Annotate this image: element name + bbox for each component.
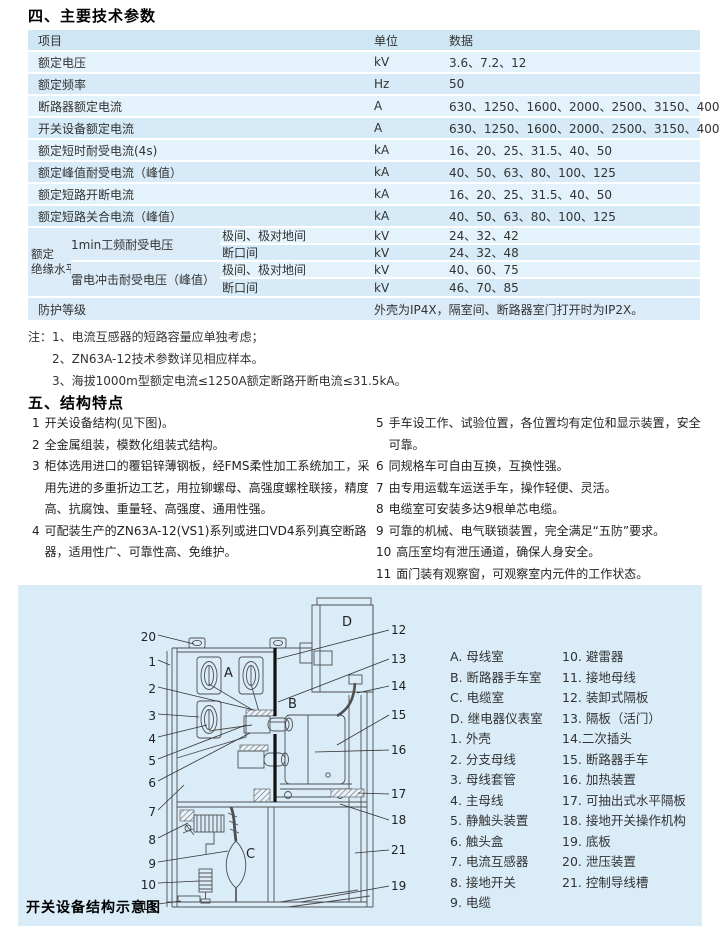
row-item: 额定峰值耐受电流（峰值） <box>28 164 372 181</box>
legend-item: 8. 接地开关 <box>450 873 543 894</box>
insulation-level-block: 额定 绝缘水平 1min工频耐受电压 雷电冲击耐受电压（峰值） 极间、极对地间 … <box>28 228 700 298</box>
callout-16: 16 <box>391 743 406 757</box>
insulation-value: 24、32、48 <box>447 245 700 262</box>
insulation-unit: kV <box>372 262 447 279</box>
note-item: 3、海拔1000m型额定电流≤1250A额定断路开断电流≤31.5kA。 <box>52 370 407 392</box>
params-table-header: 项目 单位 数据 <box>28 30 700 52</box>
row-data: 16、20、25、31.5、40、50 <box>447 142 700 159</box>
features-right-column: 5手车设工作、试验位置，各位置均有定位和显示装置，安全可靠。6同规格车可自由互换… <box>376 413 710 585</box>
params-section-title: 四、主要技术参数 <box>28 5 156 26</box>
note-line: 2、ZN63A-12技术参数详见相应样本。 <box>28 348 407 370</box>
insulation-cond: 断口间 <box>220 245 372 262</box>
callout-15: 15 <box>391 708 406 722</box>
feature-item: 5手车设工作、试验位置，各位置均有定位和显示装置，安全可靠。 <box>376 413 710 456</box>
feature-item: 7由专用运载车运送手车，操作轻便、灵活。 <box>376 478 710 500</box>
note-line: 3、海拔1000m型额定电流≤1250A额定断路开断电流≤31.5kA。 <box>28 370 407 392</box>
table-row: 额定短时耐受电流(4s) kA 16、20、25、31.5、40、50 <box>28 140 700 162</box>
feature-item: 1开关设备结构(见下图)。 <box>32 413 374 435</box>
note-item: 1、电流互感器的短路容量应单独考虑； <box>52 326 407 348</box>
features-left-column: 1开关设备结构(见下图)。2全金属组装，模数化组装式结构。3柜体选用进口的覆铝锌… <box>32 413 374 564</box>
row-item: 额定短路开断电流 <box>28 186 372 203</box>
row-unit: kA <box>372 209 447 223</box>
row-unit: A <box>372 121 447 135</box>
params-table: 项目 单位 数据 额定电压 kV 3.6、7.2、12 额定频率 Hz 50 断… <box>28 30 700 320</box>
insulation-value: 24、32、42 <box>447 228 700 245</box>
legend-item: 5. 静触头装置 <box>450 811 543 832</box>
legend-item: 21. 控制导线槽 <box>562 873 686 894</box>
row-data: 40、50、63、80、100、125 <box>447 208 700 225</box>
protection-row: 防护等级 外壳为IP4X，隔室间、断路器室门打开时为IP2X。 <box>28 298 700 320</box>
legend-item: 3. 母线套管 <box>450 770 543 791</box>
row-item: 额定短时耐受电流(4s) <box>28 142 372 159</box>
table-row: 额定电压 kV 3.6、7.2、12 <box>28 52 700 74</box>
row-data: 3.6、7.2、12 <box>447 54 700 71</box>
legend-item: 20. 泄压装置 <box>562 852 686 873</box>
legend-column-2: 10. 避雷器11. 接地母线12. 装卸式隔板13. 隔板（活门）14.二次插… <box>562 647 686 893</box>
legend-item: 18. 接地开关操作机构 <box>562 811 686 832</box>
callout-20: 20 <box>132 630 156 644</box>
features-section-title: 五、结构特点 <box>28 392 124 413</box>
table-row: 额定短路开断电流 kA 16、20、25、31.5、40、50 <box>28 184 700 206</box>
compartment-b-label: B <box>288 697 297 712</box>
insulation-unit: kV <box>372 279 447 296</box>
callout-5: 5 <box>132 754 156 768</box>
diagram-caption: 开关设备结构示意图 <box>26 897 161 917</box>
callout-9: 9 <box>132 857 156 871</box>
row-item: 额定电压 <box>28 54 372 71</box>
row-data: 630、1250、1600、2000、2500、3150、4000 <box>447 98 700 115</box>
legend-item: 1. 外壳 <box>450 729 543 750</box>
callout-8: 8 <box>132 833 156 847</box>
legend-item: 19. 底板 <box>562 832 686 853</box>
insulation-unit: kV <box>372 228 447 245</box>
callout-1: 1 <box>132 655 156 669</box>
callout-2: 2 <box>132 682 156 696</box>
table-row: 开关设备额定电流 A 630、1250、1600、2000、2500、3150、… <box>28 118 700 140</box>
insulation-cond: 极间、极对地间 <box>220 228 372 245</box>
insulation-cond: 断口间 <box>220 279 372 296</box>
protection-value: 外壳为IP4X，隔室间、断路器室门打开时为IP2X。 <box>372 301 700 318</box>
compartment-c-label: C <box>246 847 255 862</box>
insulation-value: 40、60、75 <box>447 262 700 279</box>
insulation-group-line1: 额定 <box>31 247 54 262</box>
legend-item: 9. 电缆 <box>450 893 543 914</box>
protection-label: 防护等级 <box>28 301 372 318</box>
legend-item: 13. 隔板（活门） <box>562 709 686 730</box>
row-data: 630、1250、1600、2000、2500、3150、4000 <box>447 120 700 137</box>
lightning-impulse-label: 雷电冲击耐受电压（峰值） <box>71 262 220 296</box>
feature-item: 4可配装生产的ZN63A-12(VS1)系列或进口VD4系列真空断路器，适用性广… <box>32 521 374 564</box>
insulation-value: 46、70、85 <box>447 279 700 296</box>
callout-4: 4 <box>132 732 156 746</box>
feature-item: 10高压室均有泄压通道，确保人身安全。 <box>376 542 710 564</box>
callout-19: 19 <box>391 879 406 893</box>
legend-item: 11. 接地母线 <box>562 668 686 689</box>
row-unit: kV <box>372 55 447 69</box>
table-row: 断路器额定电流 A 630、1250、1600、2000、2500、3150、4… <box>28 96 700 118</box>
params-rows: 额定电压 kV 3.6、7.2、12 额定频率 Hz 50 断路器额定电流 A … <box>28 52 700 228</box>
legend-item: A. 母线室 <box>450 647 543 668</box>
legend-item: B. 断路器手车室 <box>450 668 543 689</box>
callout-12: 12 <box>391 623 406 637</box>
feature-item: 3柜体选用进口的覆铝锌薄钢板，经FMS柔性加工系统加工，采用先进的多重折边工艺，… <box>32 456 374 521</box>
callout-10: 10 <box>132 878 156 892</box>
callout-3: 3 <box>132 709 156 723</box>
compartment-d-label: D <box>342 615 352 630</box>
callout-17: 17 <box>391 787 406 801</box>
table-row: 额定峰值耐受电流（峰值） kA 40、50、63、80、100、125 <box>28 162 700 184</box>
header-item: 项目 <box>28 32 372 49</box>
legend-item: 12. 装卸式隔板 <box>562 688 686 709</box>
callout-7: 7 <box>132 805 156 819</box>
callout-18: 18 <box>391 813 406 827</box>
insulation-unit: kV <box>372 245 447 262</box>
row-item: 断路器额定电流 <box>28 98 372 115</box>
row-unit: A <box>372 99 447 113</box>
power-frequency-label: 1min工频耐受电压 <box>71 228 220 262</box>
callout-21: 21 <box>391 843 406 857</box>
note-line: 注： 1、电流互感器的短路容量应单独考虑； <box>28 326 407 348</box>
legend-item: 17. 可抽出式水平隔板 <box>562 791 686 812</box>
legend-item: 10. 避雷器 <box>562 647 686 668</box>
legend-item: 6. 触头盒 <box>450 832 543 853</box>
callout-6: 6 <box>132 776 156 790</box>
legend-column-1: A. 母线室B. 断路器手车室C. 电缆室D. 继电器仪表室1. 外壳2. 分支… <box>450 647 543 914</box>
legend-item: 4. 主母线 <box>450 791 543 812</box>
legend-item: 15. 断路器手车 <box>562 750 686 771</box>
diagram-panel: 20 1 2 3 4 5 6 7 8 9 10 11 12 13 14 15 1… <box>18 585 702 926</box>
notes-block: 注： 1、电流互感器的短路容量应单独考虑； 2、ZN63A-12技术参数详见相应… <box>28 326 407 392</box>
legend-item: 16. 加热装置 <box>562 770 686 791</box>
legend-item: D. 继电器仪表室 <box>450 709 543 730</box>
row-item: 开关设备额定电流 <box>28 120 372 137</box>
row-data: 16、20、25、31.5、40、50 <box>447 186 700 203</box>
feature-item: 2全金属组装，模数化组装式结构。 <box>32 435 374 457</box>
callout-14: 14 <box>391 679 406 693</box>
legend-item: 2. 分支母线 <box>450 750 543 771</box>
compartment-a-label: A <box>224 666 233 681</box>
row-data: 40、50、63、80、100、125 <box>447 164 700 181</box>
row-unit: kA <box>372 143 447 157</box>
header-data: 数据 <box>447 32 700 49</box>
insulation-cond: 极间、极对地间 <box>220 262 372 279</box>
insulation-group-label: 额定 绝缘水平 <box>28 228 71 296</box>
row-item: 额定短路关合电流（峰值） <box>28 208 372 225</box>
table-row: 额定频率 Hz 50 <box>28 74 700 96</box>
header-unit: 单位 <box>372 32 447 49</box>
feature-item: 8电缆室可安装多达9根单芯电缆。 <box>376 499 710 521</box>
switchgear-diagram <box>18 585 438 925</box>
legend-item: C. 电缆室 <box>450 688 543 709</box>
row-unit: kA <box>372 165 447 179</box>
note-item: 2、ZN63A-12技术参数详见相应样本。 <box>52 348 407 370</box>
note-prefix: 注： <box>28 326 52 348</box>
row-unit: kA <box>372 187 447 201</box>
row-item: 额定频率 <box>28 76 372 93</box>
callout-13: 13 <box>391 652 406 666</box>
table-row: 额定短路关合电流（峰值） kA 40、50、63、80、100、125 <box>28 206 700 228</box>
feature-item: 6同规格车可自由互换，互换性强。 <box>376 456 710 478</box>
feature-item: 9可靠的机械、电气联锁装置，完全满足“五防”要求。 <box>376 521 710 543</box>
row-data: 50 <box>447 77 700 91</box>
legend-item: 7. 电流互感器 <box>450 852 543 873</box>
row-unit: Hz <box>372 77 447 91</box>
legend-item: 14.二次插头 <box>562 729 686 750</box>
feature-item: 11面门装有观察窗，可观察室内元件的工作状态。 <box>376 564 710 586</box>
